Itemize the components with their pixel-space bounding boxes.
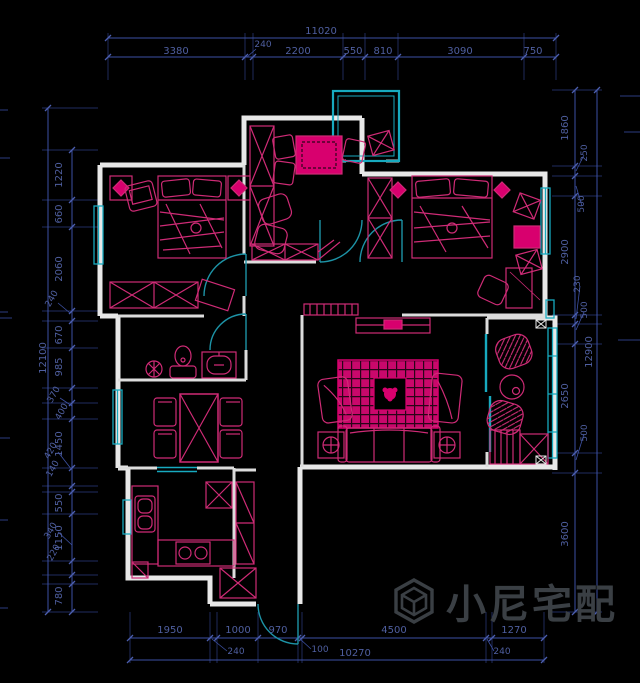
dim-right-seg: 230 xyxy=(573,275,583,292)
door-bathroom xyxy=(210,314,246,350)
kitchen-cabinet-x xyxy=(206,482,232,508)
dim-top-seg: 810 xyxy=(373,46,392,57)
dim-right-seg: 2900 xyxy=(560,239,571,264)
dim-bottom-overall: 10270 xyxy=(339,648,371,659)
dim-left-seg: 240 xyxy=(44,289,61,309)
dim-bottom-seg: 970 xyxy=(268,625,287,636)
balcony-top-glazing-inner xyxy=(338,96,394,156)
dim-right-seg: 500 xyxy=(580,301,590,318)
dim-left-seg: 550 xyxy=(54,493,65,512)
bed-left-bedroom xyxy=(158,176,226,258)
balcony-lounge-chair-top xyxy=(493,331,536,372)
corridor-cabinet xyxy=(236,482,254,564)
dim-right-overall: 12900 xyxy=(584,336,595,368)
door-middle-room xyxy=(320,220,362,262)
door-master-bedroom xyxy=(360,220,402,262)
dim-left-seg: 2060 xyxy=(54,256,65,281)
dim-left-seg: 1220 xyxy=(54,162,65,187)
kitchen-stove xyxy=(176,542,210,564)
dim-right-seg: 1860 xyxy=(560,115,571,140)
toilet xyxy=(170,346,196,378)
balcony-top-glazing xyxy=(333,91,399,161)
stool-master-top xyxy=(513,193,541,219)
dim-right-seg: 500 xyxy=(580,424,590,441)
dim-left-seg: 140 xyxy=(45,459,62,479)
dim-top-seg: 3090 xyxy=(447,46,472,57)
dim-bottom-offset: 100 xyxy=(311,645,328,655)
bathroom-plant xyxy=(146,361,162,377)
living-carpet xyxy=(338,360,438,428)
balcony-round-table xyxy=(500,375,524,399)
plan-markers xyxy=(536,320,546,464)
dim-right-seg: 500 xyxy=(577,195,587,212)
desk-master xyxy=(476,268,540,308)
dim-bottom-offset: 240 xyxy=(493,647,510,657)
chair-left-bedroom xyxy=(124,180,157,212)
stool-master-bottom xyxy=(516,249,542,274)
dim-right-seg: 250 xyxy=(580,144,590,161)
dim-left-seg: 670 xyxy=(54,325,65,344)
kitchen-sliding-door xyxy=(157,468,197,472)
nightstand-left xyxy=(110,176,132,200)
watermark-brand-text: 小尼宅配 xyxy=(446,572,618,630)
dim-bottom-seg: 1000 xyxy=(225,625,250,636)
deco-diamond-right xyxy=(494,182,510,198)
dining-table xyxy=(180,394,218,462)
dim-top-seg: 2200 xyxy=(285,46,310,57)
dim-left-seg: 985 xyxy=(54,357,65,376)
sofa xyxy=(338,426,440,462)
watermark: 小尼宅配 xyxy=(390,572,618,630)
dim-bottom-offset: 240 xyxy=(227,647,244,657)
side-table-right xyxy=(434,432,460,458)
dim-left-seg: 780 xyxy=(54,586,65,605)
dining-chairs xyxy=(154,398,242,458)
desk-chair xyxy=(476,274,510,307)
tv-table-master xyxy=(514,226,540,248)
game-table xyxy=(296,136,342,174)
tv-cabinet xyxy=(356,318,430,333)
wardrobe-left-bedroom xyxy=(110,279,235,310)
dim-top-seg: 3380 xyxy=(163,46,188,57)
bed-master xyxy=(390,176,510,258)
balcony-sliding-door xyxy=(486,334,490,452)
dim-left-overall: 12100 xyxy=(38,342,49,374)
floor-plan-canvas: 11020 3380 240 2200 550 810 3090 750 121… xyxy=(0,0,640,683)
side-table-left xyxy=(318,432,344,458)
dim-top-seg: 750 xyxy=(523,46,542,57)
nightstand-right xyxy=(228,176,250,200)
dim-right-seg: 2650 xyxy=(560,383,571,408)
kitchen-sink xyxy=(135,496,155,532)
shoe-cabinet xyxy=(220,568,256,598)
dim-top-seg: 550 xyxy=(343,46,362,57)
dim-top-overall: 11020 xyxy=(305,26,337,37)
balcony-top-cushion xyxy=(368,130,394,155)
furniture xyxy=(110,126,548,598)
door-bedroom-left xyxy=(204,254,246,296)
dim-top-seg: 240 xyxy=(254,40,271,50)
wardrobe-master xyxy=(368,178,392,258)
bathroom-vanity xyxy=(202,352,236,378)
cabinet-middle-room xyxy=(252,240,340,260)
cube-hexagon-logo-icon xyxy=(390,577,438,625)
dim-bottom-seg: 1950 xyxy=(157,625,182,636)
hall-threshold-mat xyxy=(304,304,358,315)
wardrobe-middle-room xyxy=(250,126,274,246)
dim-right-seg: 3600 xyxy=(560,521,571,546)
dim-left-seg: 660 xyxy=(54,204,65,223)
